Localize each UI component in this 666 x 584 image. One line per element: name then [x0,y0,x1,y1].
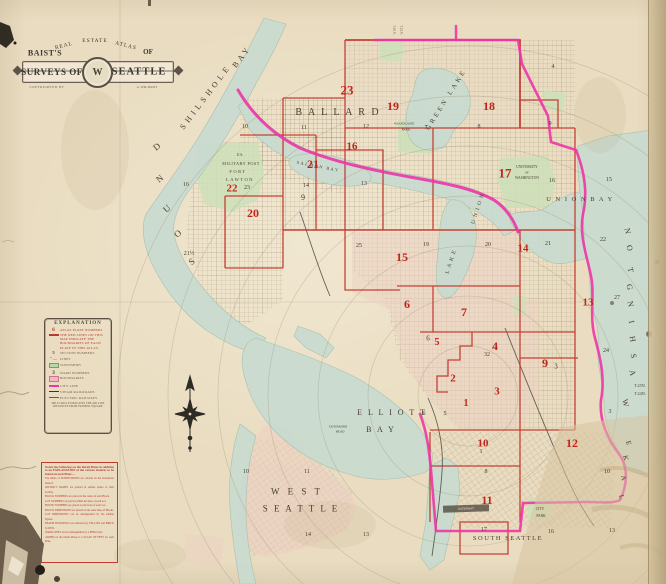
publisher-seal: W [82,57,113,88]
notice-line: FRAME BUILDINGS are indicated by YELLOW … [45,522,114,531]
title-of: OF [143,48,153,56]
green-lake [406,68,470,150]
legend-swatch-num: 5 [47,351,60,355]
title-seattle: SEATTLE [112,67,167,78]
legend-footnote: MILE CIRCLE INDICATES THE AIR LINE DISTA… [47,402,109,409]
notice-line: DISTRICT NAMES are printed in outline le… [45,486,114,495]
legend-label: BOUNDARIES [60,376,84,380]
legend-row: BOUNDARIES [47,376,109,382]
title-copyright: COPYRIGHTED BY [30,85,65,89]
legend-label: STEAM RAILROADS [60,390,95,394]
title-arch-atlas: ATLAS [115,40,138,51]
legend-label: ELECTRIC RAILWAYS [60,396,97,400]
legend-label: WARD NUMBERS [60,371,90,375]
notice-line: LOT DIMENSIONS can be distinguished by t… [45,513,114,522]
legend-title: EXPLANATION [47,321,109,326]
legend-swatch-dash: ″ — [47,357,60,361]
legend-label: SECTION NUMBERS [60,351,95,355]
legend-row: 3WARD NUMBERS [47,371,109,375]
notice-box: Notice the following on the Detail Plate… [41,462,118,563]
legend-swatch-mag-bar [47,384,60,388]
banner-finial [174,66,184,76]
legend-swatch-pink-box [47,376,60,382]
legend-rows: 6ATLAS PLATE NUMBERSTHE RED LINES ON THI… [47,328,109,400]
legend-row: 6ATLAS PLATE NUMBERS [47,328,109,332]
duwamish-waterway [420,458,460,570]
seal-monogram: W [93,67,103,78]
legend-swatch-redthin-bar [47,396,60,400]
notice-line: The limits of SUBDIVISIONS are colored o… [45,477,114,486]
legend-swatch-green-box [47,363,60,369]
legend-label: THE RED LINES ON THIS MAP INDICATE THE B… [60,333,109,349]
legend-row: THE RED LINES ON THIS MAP INDICATE THE B… [47,333,109,349]
legend-swatch-red-num: 6 [47,328,60,332]
legend-label: ATLAS PLATE NUMBERS [60,328,103,332]
compass-rose [175,376,205,452]
legend-row: ″ —LINES [47,357,109,361]
legend-swatch-black-bar [47,390,60,394]
legend-row: CITY LINE [47,384,109,388]
title-publisher: G. WM. BAIST [137,85,157,89]
legend-swatch-red-bar [47,333,60,337]
notice-lines: The limits of SUBDIVISIONS are colored o… [45,477,114,545]
notice-heading: Notice the following on the Detail Plate… [45,466,114,478]
title-surveys-of: SURVEYS OF [21,67,82,77]
legend-row: ELECTRIC RAILWAYS [47,396,109,400]
notice-line: ADDED on the Detail Plates is a SCALE OF… [45,536,114,545]
atlas-index-map: B A L L A R DGREEN LAKESHILSHOLEBAYDNUOS… [0,0,666,584]
legend-row: TOWNSHIPS [47,363,109,369]
legend-row: STEAM RAILROADS [47,390,109,394]
pencil-notes [0,241,36,471]
legend-label: TOWNSHIPS [60,363,81,367]
title-arch-real: REAL [54,41,73,51]
explanation-legend: EXPLANATION 6ATLAS PLATE NUMBERSTHE RED … [44,318,112,434]
title-block: BAIST'S REAL ESTATE ATLAS OF SURVEYS OF … [12,36,184,94]
legend-row: 5SECTION NUMBERS [47,351,109,355]
legend-label: CITY LINE [60,384,78,388]
legend-swatch-num-big: 3 [47,371,60,375]
legend-label: LINES [60,357,71,361]
page-edge-shadow [648,0,666,584]
title-arch-estate: ESTATE [82,38,107,44]
